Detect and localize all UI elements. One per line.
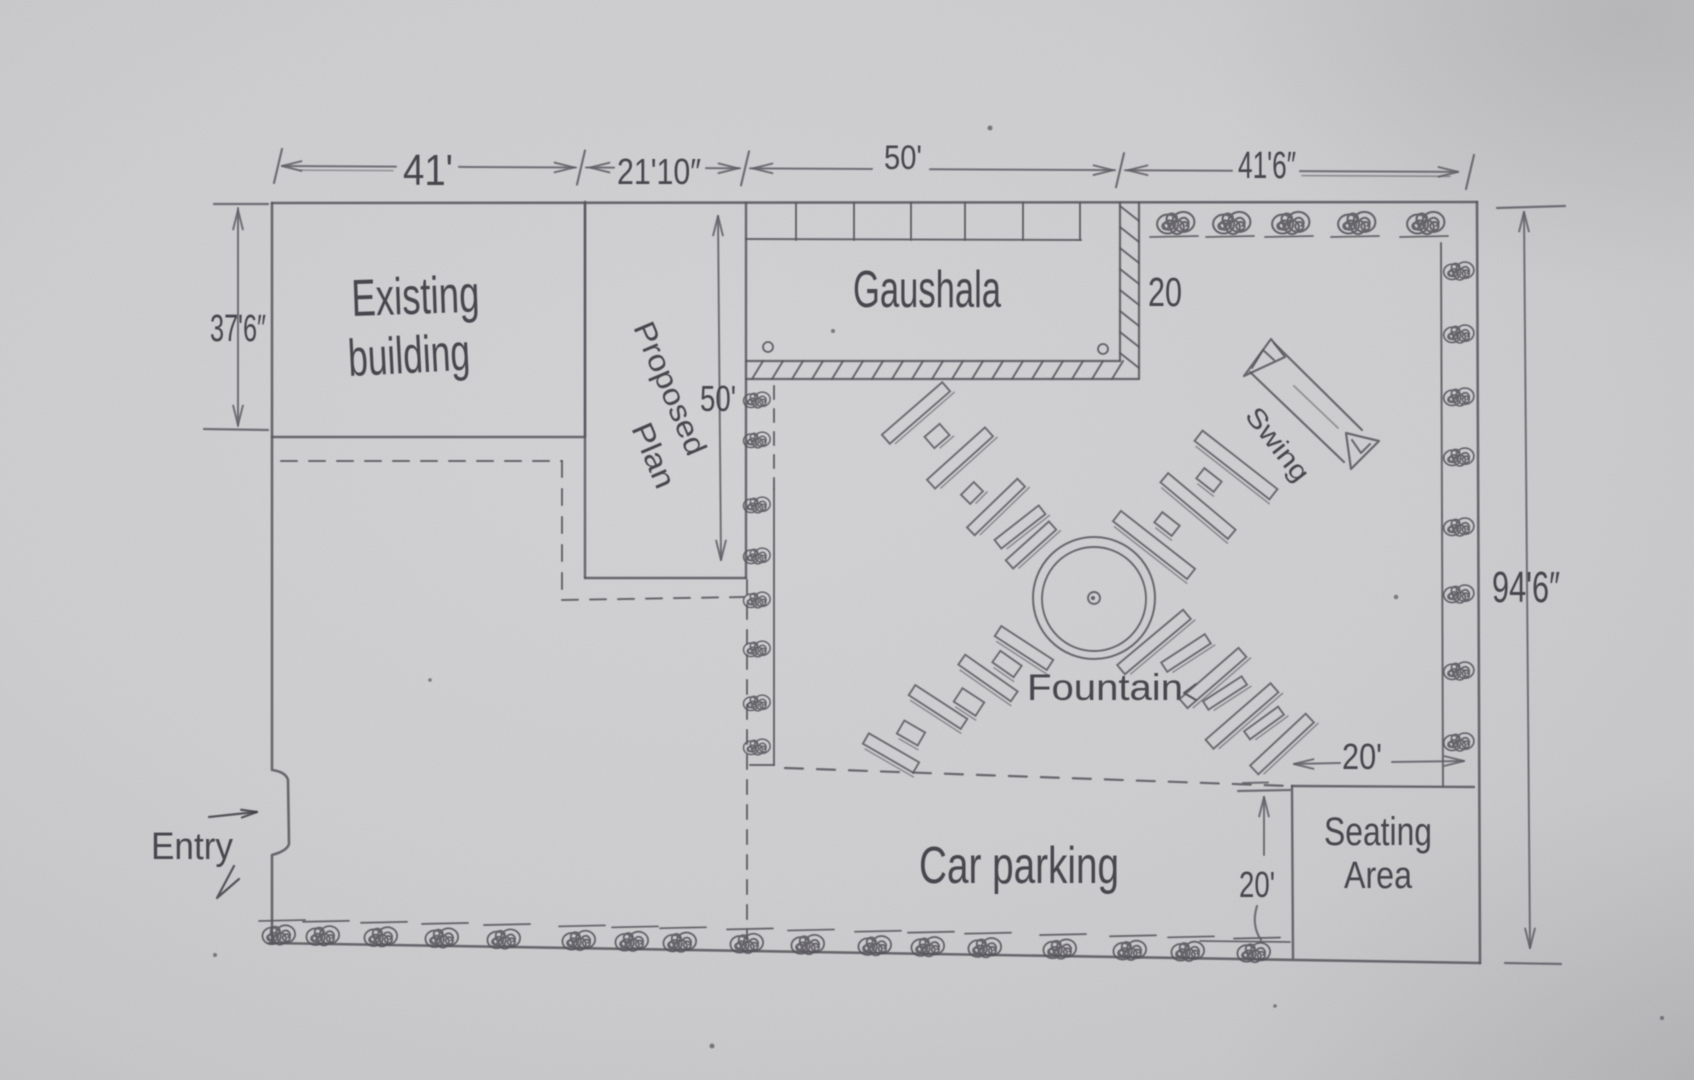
svg-text:Existing: Existing xyxy=(350,266,480,328)
svg-text:Fountain: Fountain xyxy=(1027,667,1183,708)
svg-text:20': 20' xyxy=(1342,736,1382,777)
svg-text:Area: Area xyxy=(1344,855,1413,897)
svg-text:Gaushala: Gaushala xyxy=(853,261,1001,319)
svg-text:37'6″: 37'6″ xyxy=(210,308,266,350)
svg-text:Car parking: Car parking xyxy=(919,837,1119,895)
svg-text:41'6″: 41'6″ xyxy=(1238,145,1296,187)
svg-text:20: 20 xyxy=(1148,269,1182,315)
svg-text:50': 50' xyxy=(884,139,922,177)
svg-text:20': 20' xyxy=(1239,864,1275,905)
svg-text:Seating: Seating xyxy=(1324,810,1432,854)
svg-text:94'6″: 94'6″ xyxy=(1492,563,1560,612)
svg-text:50': 50' xyxy=(700,378,736,419)
svg-text:building: building xyxy=(347,324,472,388)
svg-text:Entry: Entry xyxy=(151,826,233,868)
svg-text:41': 41' xyxy=(403,146,453,195)
svg-text:21'10″: 21'10″ xyxy=(617,151,701,192)
